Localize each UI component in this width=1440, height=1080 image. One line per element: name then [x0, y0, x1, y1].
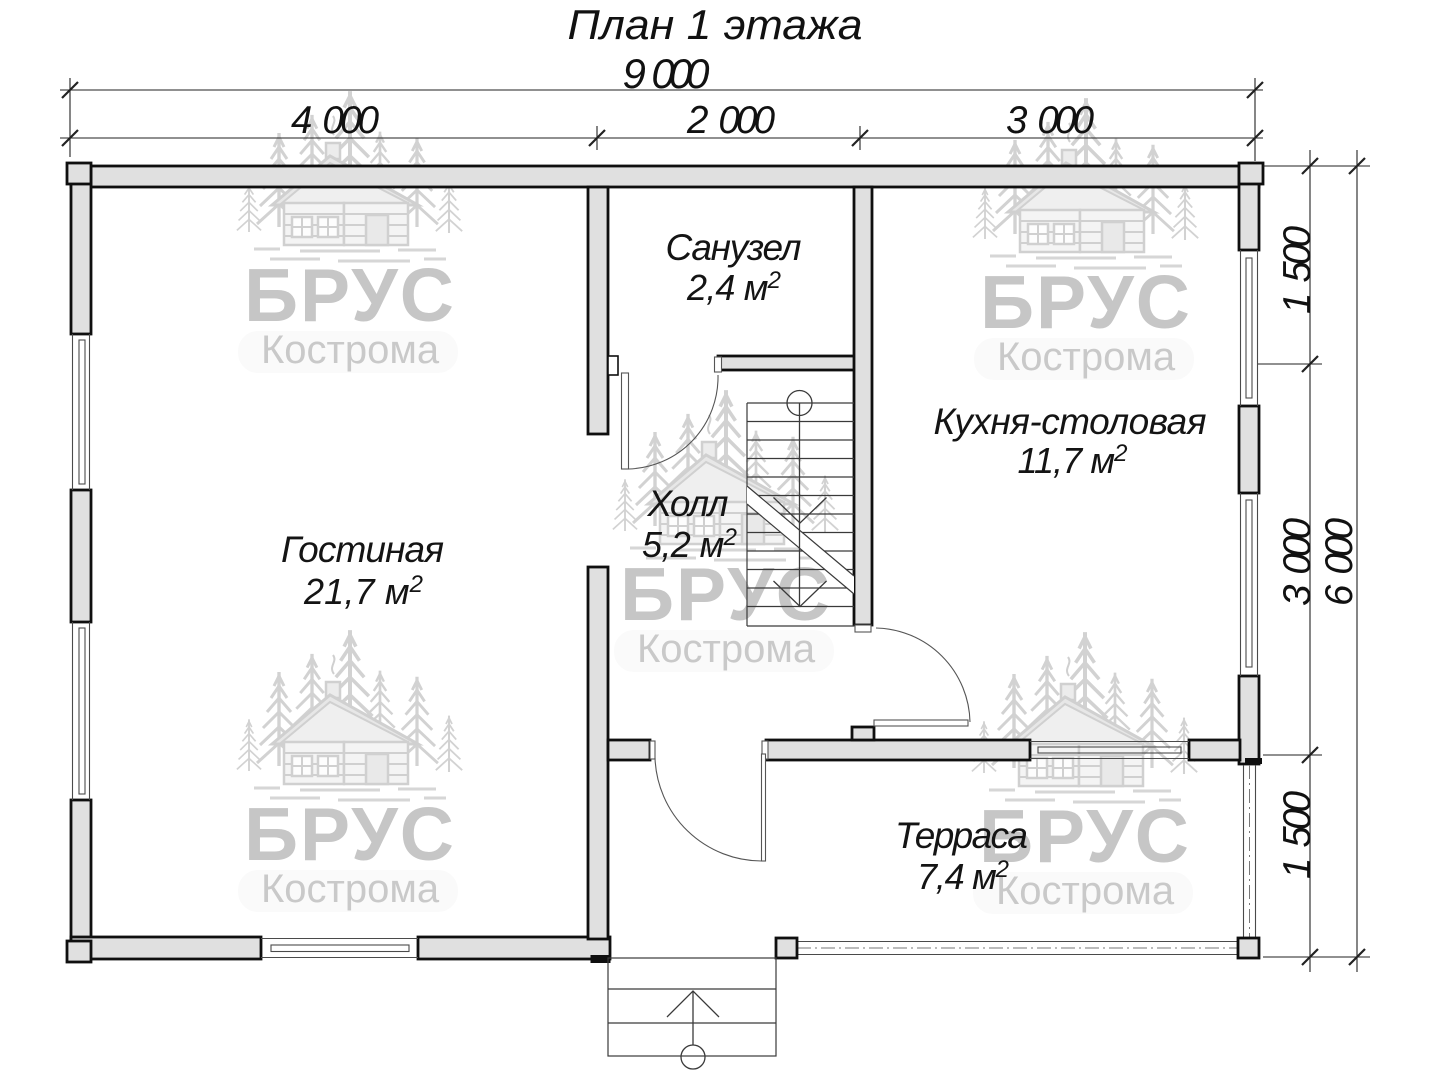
svg-text:Холл: Холл	[647, 483, 729, 524]
svg-text:План 1 этажа: План 1 этажа	[568, 1, 863, 48]
svg-text:9 000: 9 000	[623, 50, 711, 97]
svg-text:5,2 м2: 5,2 м2	[642, 524, 737, 565]
svg-text:2 000: 2 000	[686, 99, 776, 142]
svg-text:1 500: 1 500	[1276, 790, 1319, 879]
svg-text:3 000: 3 000	[1006, 99, 1095, 142]
svg-text:7,4 м2: 7,4 м2	[917, 856, 1009, 897]
svg-text:21,7 м2: 21,7 м2	[303, 571, 423, 612]
svg-text:4 000: 4 000	[291, 99, 380, 142]
svg-text:Терраса: Терраса	[895, 815, 1028, 856]
svg-text:3 000: 3 000	[1276, 517, 1319, 606]
svg-text:Гостиная: Гостиная	[281, 529, 444, 570]
svg-text:6 000: 6 000	[1318, 517, 1361, 606]
svg-text:Санузел: Санузел	[666, 227, 802, 268]
svg-text:11,7 м2: 11,7 м2	[1018, 440, 1128, 481]
svg-text:Кухня-столовая: Кухня-столовая	[934, 401, 1207, 442]
svg-text:1 500: 1 500	[1276, 225, 1319, 314]
svg-text:2,4 м2: 2,4 м2	[686, 267, 781, 308]
